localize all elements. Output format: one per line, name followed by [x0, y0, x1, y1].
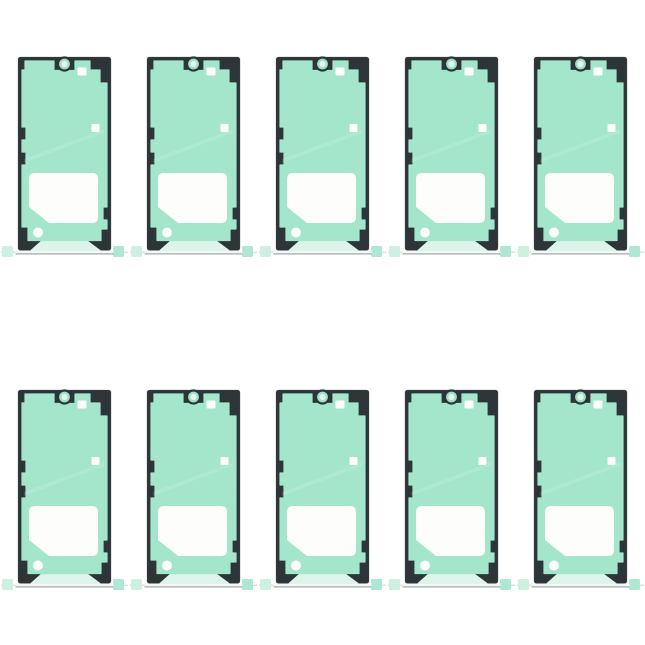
round-hole-cutout	[291, 228, 301, 238]
pull-tab-left	[518, 579, 529, 590]
pull-tab-left	[131, 246, 142, 257]
pull-tab-right	[500, 246, 511, 257]
adhesive-sheet	[258, 57, 387, 263]
pull-tab-left	[2, 579, 13, 590]
pull-tab-left	[260, 246, 271, 257]
pull-tab-right	[242, 246, 253, 257]
camera-hole-cutout	[190, 394, 196, 400]
bottom-adhesive-strip	[289, 575, 358, 584]
round-hole-cutout	[162, 228, 172, 238]
liner-edge-strip	[16, 253, 114, 255]
adhesive-sheet	[0, 57, 129, 263]
liner-edge-strip	[403, 253, 501, 255]
camera-hole-cutout	[319, 394, 325, 400]
component-cutout-square	[92, 457, 100, 465]
camera-hole-cutout	[190, 61, 196, 67]
camera-hole-cutout	[577, 394, 583, 400]
pull-tab-left	[518, 246, 529, 257]
liner-edge-strip	[16, 586, 114, 588]
pull-tab-right	[371, 579, 382, 590]
adhesive-sheet	[516, 390, 645, 596]
pull-tab-right	[113, 579, 124, 590]
bottom-adhesive-strip	[418, 575, 487, 584]
adhesive-sheet	[258, 390, 387, 596]
component-cutout-square	[221, 457, 229, 465]
component-cutout-square	[350, 457, 358, 465]
pull-tab-right	[113, 246, 124, 257]
camera-hole-cutout	[319, 61, 325, 67]
sheet-row	[0, 390, 645, 596]
liner-edge-strip	[532, 586, 630, 588]
round-hole-cutout	[549, 228, 559, 238]
sensor-cutout-square	[465, 401, 474, 409]
pull-tab-left	[389, 579, 400, 590]
bottom-adhesive-strip	[31, 242, 100, 251]
pull-tab-left	[131, 579, 142, 590]
bottom-adhesive-strip	[418, 242, 487, 251]
camera-hole-cutout	[448, 394, 454, 400]
round-hole-cutout	[291, 561, 301, 571]
round-hole-cutout	[420, 228, 430, 238]
bottom-adhesive-strip	[160, 242, 229, 251]
pull-tab-right	[500, 579, 511, 590]
camera-hole-cutout	[577, 61, 583, 67]
bottom-adhesive-strip	[31, 575, 100, 584]
sensor-cutout-square	[78, 68, 87, 76]
sensor-cutout-square	[78, 401, 87, 409]
component-cutout-square	[479, 457, 487, 465]
bottom-adhesive-strip	[547, 242, 616, 251]
camera-hole-cutout	[61, 394, 67, 400]
product-photo	[0, 0, 645, 645]
camera-hole-cutout	[448, 61, 454, 67]
sensor-cutout-square	[207, 68, 216, 76]
sensor-cutout-square	[594, 401, 603, 409]
component-cutout-square	[479, 124, 487, 132]
liner-edge-strip	[145, 586, 243, 588]
round-hole-cutout	[162, 561, 172, 571]
pull-tab-right	[629, 579, 640, 590]
liner-edge-strip	[145, 253, 243, 255]
liner-edge-strip	[403, 586, 501, 588]
adhesive-sheet	[387, 57, 516, 263]
pull-tab-left	[2, 246, 13, 257]
pull-tab-right	[242, 579, 253, 590]
adhesive-sheet	[516, 57, 645, 263]
bottom-adhesive-strip	[289, 242, 358, 251]
component-cutout-square	[608, 457, 616, 465]
component-cutout-square	[92, 124, 100, 132]
component-cutout-square	[350, 124, 358, 132]
round-hole-cutout	[420, 561, 430, 571]
bottom-adhesive-strip	[160, 575, 229, 584]
pull-tab-left	[389, 246, 400, 257]
pull-tab-left	[260, 579, 271, 590]
sheet-row	[0, 57, 645, 263]
adhesive-sheet	[0, 390, 129, 596]
pull-tab-right	[371, 246, 382, 257]
liner-edge-strip	[274, 253, 372, 255]
round-hole-cutout	[33, 561, 43, 571]
sensor-cutout-square	[336, 401, 345, 409]
liner-edge-strip	[274, 586, 372, 588]
camera-hole-cutout	[61, 61, 67, 67]
sensor-cutout-square	[207, 401, 216, 409]
pull-tab-right	[629, 246, 640, 257]
adhesive-sheet	[387, 390, 516, 596]
adhesive-sheet	[129, 390, 258, 596]
sensor-cutout-square	[594, 68, 603, 76]
component-cutout-square	[221, 124, 229, 132]
component-cutout-square	[608, 124, 616, 132]
round-hole-cutout	[549, 561, 559, 571]
sensor-cutout-square	[465, 68, 474, 76]
sensor-cutout-square	[336, 68, 345, 76]
bottom-adhesive-strip	[547, 575, 616, 584]
liner-edge-strip	[532, 253, 630, 255]
adhesive-sheet	[129, 57, 258, 263]
round-hole-cutout	[33, 228, 43, 238]
